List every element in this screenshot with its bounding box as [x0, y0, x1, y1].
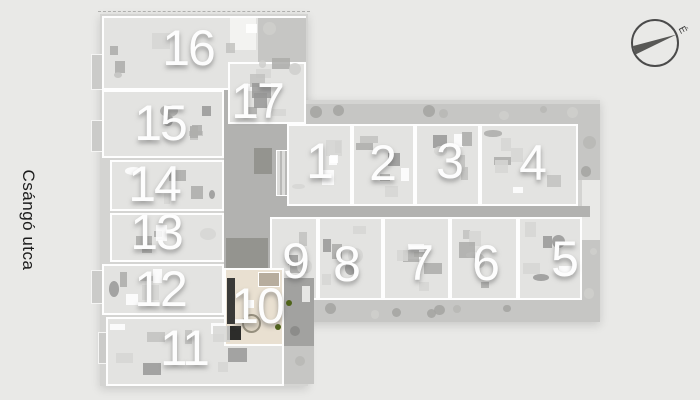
apartment-2[interactable] [352, 124, 415, 206]
furniture-item [142, 285, 159, 300]
furniture-item [459, 242, 475, 258]
bed [258, 272, 280, 287]
terrace-plant [259, 60, 266, 67]
furniture-item [110, 46, 117, 55]
furniture-item [559, 266, 573, 275]
furniture-item [326, 140, 342, 156]
terrace-plant [567, 107, 578, 118]
furniture-item [388, 153, 399, 166]
terrace-right-top [578, 124, 600, 180]
terrace-plant [439, 109, 448, 118]
floor-plan-canvas: Csángó utca [0, 0, 700, 400]
terrace-plant [499, 111, 509, 121]
terrace-plant [325, 303, 336, 314]
furniture-item [213, 326, 231, 342]
plant-dot [275, 324, 281, 330]
furniture-item [462, 132, 472, 146]
furniture-item [380, 174, 390, 181]
corridor-right-wing [306, 206, 590, 217]
furniture-item [356, 143, 373, 150]
terrace-plant [333, 105, 344, 116]
apartment-12[interactable] [102, 264, 224, 315]
furniture-item [292, 184, 305, 190]
terrace-apartment-11 [284, 346, 314, 384]
terrace-plant [427, 309, 436, 318]
furniture-item [547, 175, 561, 187]
terrace-plant [590, 248, 597, 255]
apartment-6[interactable] [450, 217, 518, 300]
furniture-item [501, 138, 510, 151]
terrace-plant [423, 105, 435, 117]
furniture-item [272, 58, 290, 69]
service-core [226, 238, 268, 268]
terrace-plant [581, 166, 592, 177]
furniture-item [185, 330, 192, 344]
furniture-item [424, 263, 442, 274]
terrace-strip-top [300, 104, 600, 124]
furniture-item [414, 252, 425, 257]
apartment-10[interactable] [224, 268, 284, 346]
furniture-item [116, 353, 133, 363]
furniture-item [153, 269, 162, 283]
compass-north-label: É [676, 24, 691, 36]
street-name-label: Csángó utca [18, 170, 38, 271]
terrace-plant [289, 63, 301, 75]
furniture-item [495, 160, 508, 173]
terrace-plant [584, 288, 594, 298]
furniture-item [143, 363, 161, 375]
apartment-8[interactable] [318, 217, 383, 300]
terrace-apartment-10 [284, 278, 314, 346]
furniture-item [228, 348, 247, 361]
furniture-item [156, 225, 167, 240]
furniture-item [484, 130, 502, 136]
furniture-item [533, 274, 549, 281]
compass-circle [632, 20, 678, 66]
terrace-plant [295, 356, 306, 367]
furniture-item [110, 324, 125, 330]
furniture-item [200, 228, 216, 240]
furniture-item [323, 239, 331, 252]
elevator-core [254, 148, 272, 174]
furniture-item [543, 236, 552, 248]
furniture-item [419, 282, 429, 291]
furniture-item [299, 232, 307, 246]
furniture-item [246, 24, 257, 33]
furniture-item [525, 222, 536, 237]
furniture-item [345, 262, 357, 275]
apartment-3[interactable] [415, 124, 480, 206]
apartment-1[interactable] [287, 124, 352, 206]
lounge-chair [302, 286, 310, 302]
furniture-item [385, 186, 398, 197]
furniture-item [169, 170, 186, 181]
furniture-item [272, 109, 286, 117]
terrace-table [290, 326, 300, 336]
furniture-item [152, 33, 171, 48]
furniture-item [136, 236, 152, 246]
apartment-5[interactable] [518, 217, 582, 300]
apartment-13[interactable] [110, 213, 224, 262]
furniture-item [348, 248, 364, 263]
furniture-item [434, 146, 446, 156]
terrace-plant [310, 106, 322, 118]
furniture-item [191, 186, 203, 199]
furniture-item [288, 255, 298, 265]
furniture-item [140, 276, 153, 281]
furniture-item [147, 332, 165, 343]
furniture-item [397, 250, 408, 261]
terrace-plant [392, 308, 401, 317]
property-line [98, 11, 310, 12]
terrace-plant [503, 305, 510, 312]
terrace-plant [583, 136, 596, 149]
furniture-item [120, 272, 127, 286]
compass-needle [633, 35, 677, 55]
furniture-item [523, 263, 541, 274]
furniture-item [164, 193, 170, 205]
terrace-plant [540, 106, 548, 114]
plant-dot [286, 300, 292, 306]
furniture-item [202, 106, 211, 115]
apartment-15[interactable] [102, 90, 224, 158]
furniture-item [481, 282, 489, 288]
furniture-item [190, 126, 198, 137]
apartment-4[interactable] [480, 124, 578, 206]
furniture-item [109, 281, 119, 297]
terrace-right-bottom [582, 240, 600, 322]
furniture-item [114, 72, 122, 78]
dining-table [242, 314, 261, 333]
terrace-strip-bottom [300, 300, 600, 322]
furniture-item [461, 167, 467, 180]
furniture-item [125, 167, 142, 175]
furniture-item [252, 83, 270, 98]
furniture-item [513, 187, 523, 193]
kitchen-island [244, 300, 254, 308]
terrace-plant [453, 305, 461, 313]
terrace-plant [263, 22, 276, 35]
furniture-item [511, 148, 522, 162]
apartment-14[interactable] [110, 160, 224, 211]
furniture-item [126, 294, 138, 306]
apartment-7[interactable] [383, 217, 450, 300]
furniture-item [160, 105, 178, 117]
furniture-item [322, 170, 333, 185]
furniture-item [353, 226, 365, 235]
furniture-item [322, 274, 331, 285]
furniture-item [226, 43, 236, 53]
terrace-plant [371, 310, 380, 319]
furniture-item [360, 136, 377, 143]
furniture-item [218, 362, 228, 372]
kitchen-counter [227, 278, 235, 324]
furniture-item [401, 168, 409, 181]
furniture-item [552, 235, 565, 248]
furniture-item [329, 156, 337, 164]
furniture-item [297, 259, 311, 274]
furniture-item [332, 244, 342, 258]
furniture-item [247, 107, 256, 117]
furniture-item [209, 190, 215, 199]
